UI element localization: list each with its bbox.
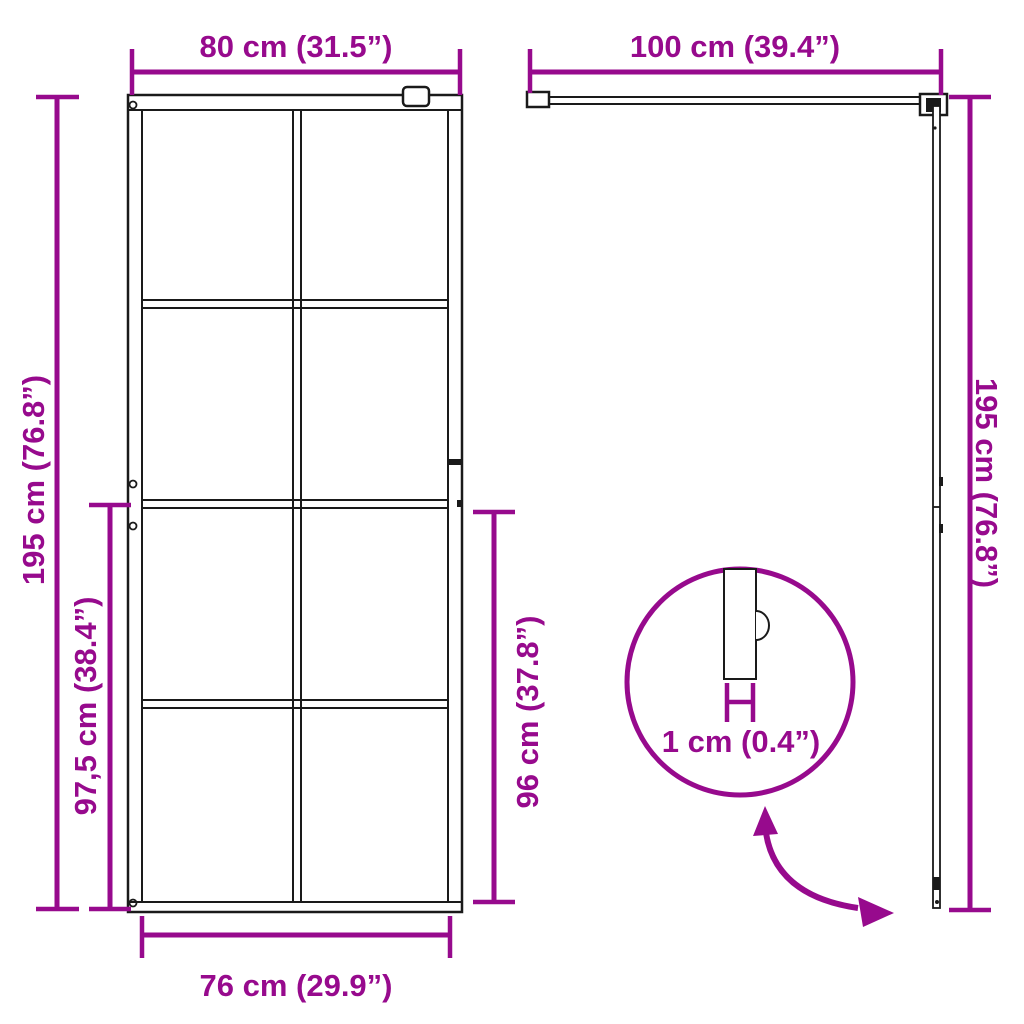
profile-screw-dot xyxy=(933,126,936,129)
roller-bracket-tab xyxy=(403,87,429,106)
door-outer-frame xyxy=(128,95,462,912)
door-handle-mark xyxy=(447,459,462,465)
profile-handle-bump xyxy=(939,524,943,533)
side-right-height-label: 195 cm (76.8”) xyxy=(969,378,1004,588)
door-handle-mark xyxy=(457,500,463,507)
curved-double-arrow-icon xyxy=(766,833,858,908)
front-top-width-label: 80 cm (31.5”) xyxy=(200,29,393,64)
front-bottom-width-label: 76 cm (29.9”) xyxy=(200,968,393,1003)
dimension-side-right-height: 195 cm (76.8”) xyxy=(949,97,1004,910)
profile-thickness-label: 1 cm (0.4”) xyxy=(662,724,821,759)
profile-cross-section xyxy=(724,569,756,679)
front-view-door xyxy=(128,87,463,912)
front-right-partial-height-label: 96 cm (37.8”) xyxy=(510,616,545,809)
arrowhead-up xyxy=(753,806,778,836)
side-top-width-label: 100 cm (39.4”) xyxy=(630,29,840,64)
arrowhead-right xyxy=(858,897,894,927)
product-dimension-diagram: 80 cm (31.5”) 195 cm (76.8”) 97,5 cm (38… xyxy=(0,0,1024,1024)
front-left-partial-height-label: 97,5 cm (38.4”) xyxy=(68,597,103,816)
floor-guide-mark xyxy=(933,877,940,890)
diagram-canvas: 80 cm (31.5”) 195 cm (76.8”) 97,5 cm (38… xyxy=(0,0,1024,1024)
side-view-door xyxy=(527,92,947,908)
front-left-height-label: 195 cm (76.8”) xyxy=(16,375,51,585)
dimension-front-right-partial-height: 96 cm (37.8”) xyxy=(473,512,545,902)
swing-arrow xyxy=(753,806,894,927)
dimension-front-top-width: 80 cm (31.5”) xyxy=(132,29,460,95)
rail-end-cap xyxy=(527,92,549,107)
profile-handle-bump xyxy=(939,477,943,486)
floor-guide-dot xyxy=(935,900,939,904)
detail-callout: 1 cm (0.4”) xyxy=(627,569,853,795)
profile-handle-bump-detail xyxy=(756,611,769,640)
dimension-front-left-partial-height: 97,5 cm (38.4”) xyxy=(68,505,131,909)
dimension-side-top-width: 100 cm (39.4”) xyxy=(530,29,941,95)
dimension-front-bottom-width: 76 cm (29.9”) xyxy=(142,916,450,1003)
